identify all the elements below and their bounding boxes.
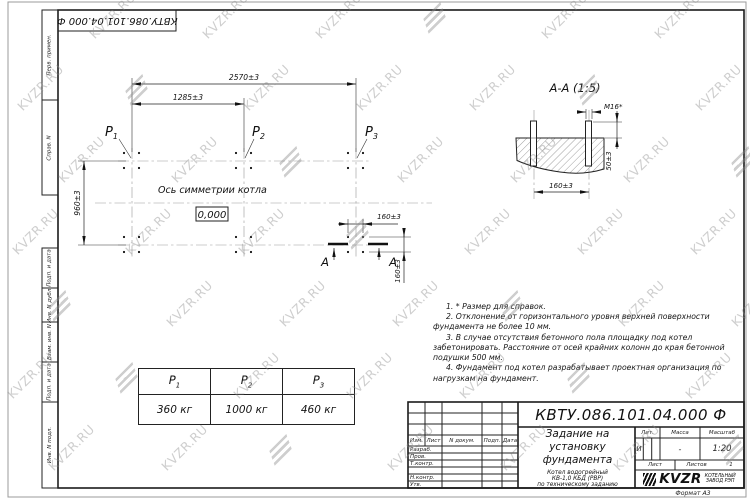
sign-label-tkontr: Т.контр. [410,461,434,467]
section-mark-left: A [320,255,329,269]
drawing-linework: 2570±3 1285±3 960±3 P1 P2 P3 О [0,0,750,500]
load-table-header-row: P1 P2 P3 [139,369,355,395]
document-title: Задание на установку фундамента [520,428,635,468]
kvzr-logo-text: KVZR [659,471,701,487]
elevation-mark: 0,000 [198,210,227,221]
load-table-header-p1: P1 [139,369,211,395]
margin-label-vzam-inv: Взам. инв. N [42,322,58,362]
lit-label: Лит. [635,428,660,437]
margin-label-podp-data-1: Подп. и дата [42,248,58,288]
technical-notes: 1. * Размер для справок. 2. Отклонение о… [433,302,739,384]
load-point-p3: P3 [365,125,378,141]
margin-label-podp-data-2: Подп. и дата [42,362,58,402]
sign-label-prov: Пров. [410,454,426,460]
margin-label-perv-primen: Перв. примен. [42,10,58,100]
load-table-value-row: 360 кг 1000 кг 460 кг [139,395,355,425]
section-view: А-А (1:5) M16* 50±3 160±3 [516,81,623,199]
section-title: А-А (1:5) [548,81,600,95]
load-p1-value: 360 кг [139,395,211,425]
corner-designation-stamp: КВТУ.086.101.04.000 Ф [58,10,176,31]
note-3: 3. В случае отсутствия бетонного пола пл… [433,333,739,364]
sign-label-razrab: Разраб. [410,447,432,453]
sheets-label: Листов [686,462,707,468]
rev-header-izm: Изм. [408,436,425,445]
format-note: Формат А3 [648,489,738,498]
mass-label: Масса [660,428,700,437]
section-mark-right: A [388,255,397,269]
product-name: Котел водогрейный КВ-1,0 КБД (РВР) по те… [520,470,635,488]
load-point-p2: P2 [252,125,265,141]
title-block-designation: КВТУ.086.101.04.000 Ф [520,404,742,425]
load-table-header-p2: P2 [211,369,283,395]
sign-label-nkontr: Н.контр. [410,475,435,481]
axis-label: Ось симметрии котла [158,185,267,196]
rev-header-list: Лист [425,436,442,445]
dim-half-width: 1285±3 [173,93,203,102]
note-2: 2. Отклонение от горизонтального уровня … [433,312,739,332]
note-4: 4. Фундамент под котел разрабатывает про… [433,363,739,383]
dim-vertical: 960±3 [73,190,82,216]
sheets-value: 1 [729,462,733,468]
rev-header-podp: Подп. [482,436,502,445]
margin-label-sprav-n: Справ. N [42,100,58,195]
plan-view: 2570±3 1285±3 960±3 P1 P2 P3 О [73,73,432,283]
load-point-p1: P1 [105,125,118,141]
drawing-sheet: KVZR.RUKVZR.RUKVZR.RUKVZR.RUKVZR.RUKVZR.… [0,0,750,500]
dim-total-width: 2570±3 [229,73,259,82]
load-table-header-p3: P3 [283,369,355,395]
rev-header-ndokum: N докум. [442,436,482,445]
sheet-label: Лист [635,461,675,469]
lit-value: И [635,440,643,458]
scale-label: Масштаб [700,428,744,437]
kvzr-logo-subtitle: КОТЕЛЬНЫЙ ЗАВОД РЭП [705,474,736,485]
rev-header-data: Дата [502,436,518,445]
dim-protrusion: 50±3 [605,151,613,170]
manufacturer-logo: KVZR КОТЕЛЬНЫЙ ЗАВОД РЭП [635,470,744,488]
dim-bolt-horizontal: 160±3 [377,213,401,221]
load-table: P1 P2 P3 360 кг 1000 кг 460 кг [138,368,355,425]
margin-label-inv-podl: Инв. N подл. [42,402,58,488]
anchor-bolt-dots [123,152,364,253]
load-p2-value: 1000 кг [211,395,283,425]
sheets-cell: Листов 1 [675,461,744,469]
dim-section-spacing: 160±3 [549,182,573,190]
sign-label-utv: Утв. [410,482,422,488]
load-p3-value: 460 кг [283,395,355,425]
note-1: 1. * Размер для справок. [433,302,739,312]
scale-value: 1:20 [700,440,744,458]
bolt-thread-label: M16* [604,103,623,111]
mass-value: - [660,440,700,458]
kvzr-logo-icon [643,473,656,486]
margin-label-inv-dubl: Инв. N дубл. [42,288,58,322]
